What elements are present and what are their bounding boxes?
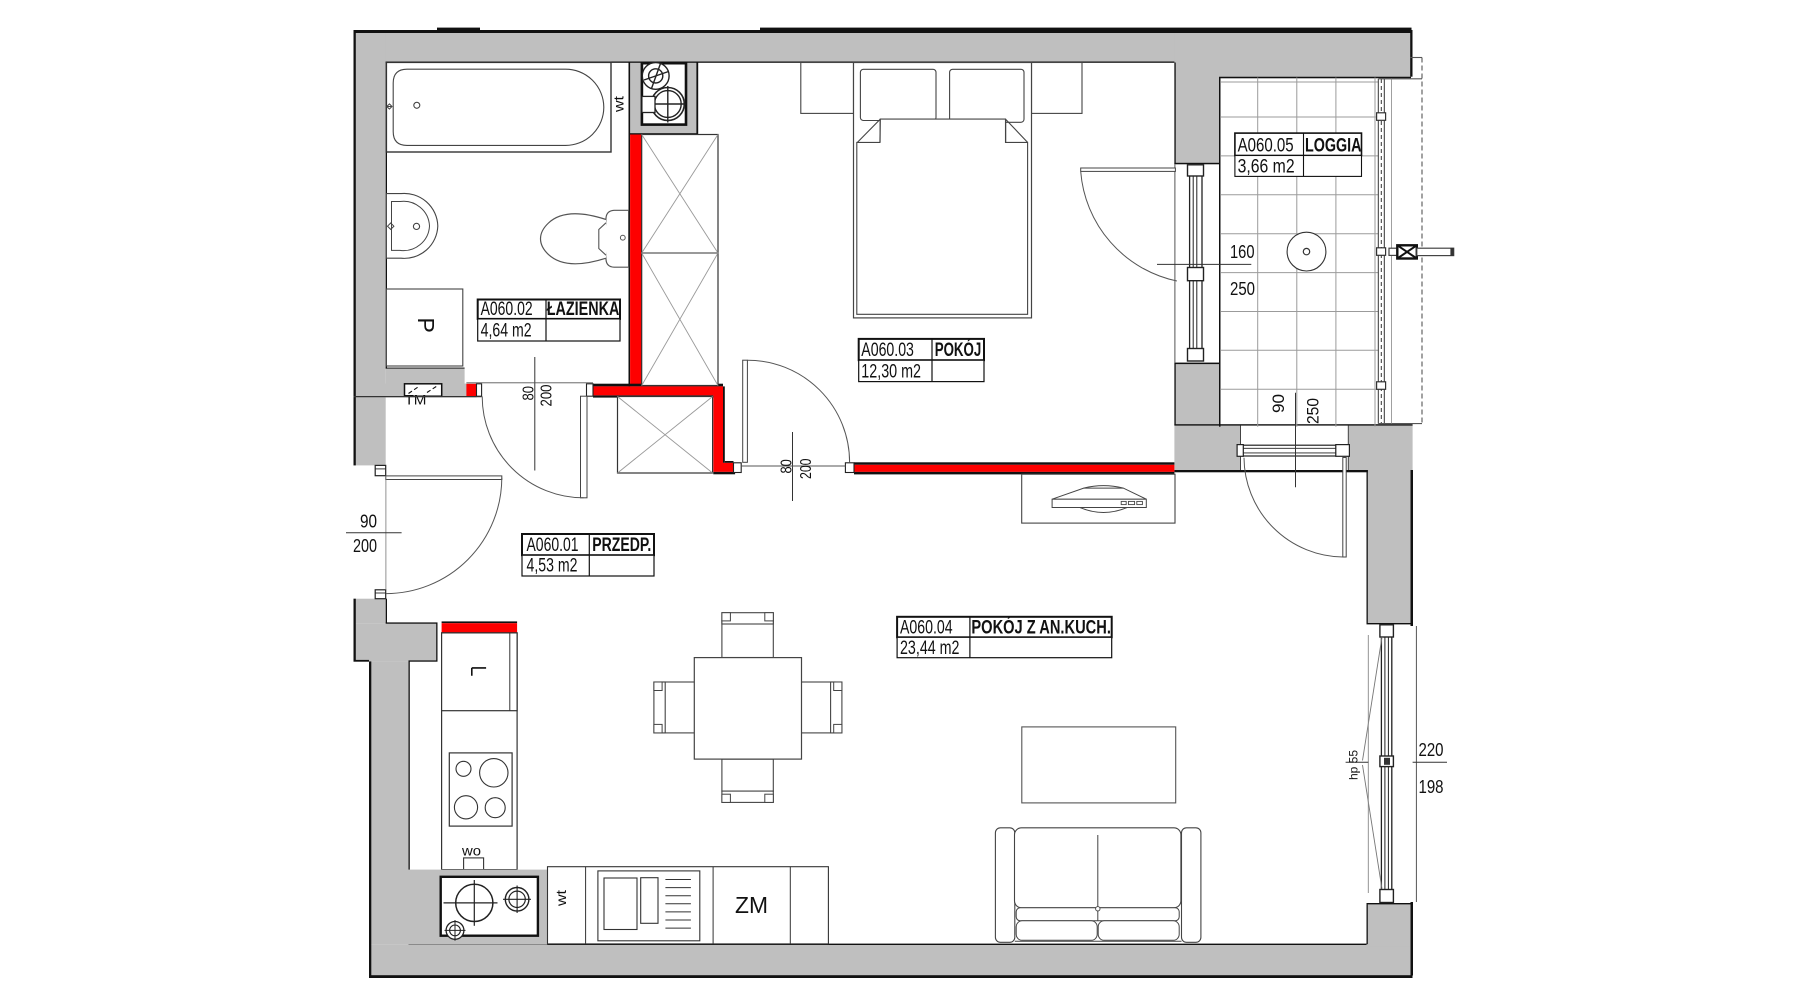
svg-text:4,64 m2: 4,64 m2 bbox=[481, 320, 532, 342]
svg-text:POKÓJ Z AN.KUCH.: POKÓJ Z AN.KUCH. bbox=[971, 615, 1111, 639]
svg-text:250: 250 bbox=[1230, 278, 1255, 299]
svg-text:LOGGIA: LOGGIA bbox=[1305, 134, 1362, 156]
svg-text:90: 90 bbox=[360, 510, 377, 531]
svg-text:A060.02: A060.02 bbox=[481, 298, 533, 320]
svg-text:90: 90 bbox=[1270, 394, 1288, 413]
svg-text:ŁAZIENKA: ŁAZIENKA bbox=[547, 298, 620, 320]
svg-text:A060.05: A060.05 bbox=[1238, 134, 1294, 156]
svg-text:wo: wo bbox=[461, 843, 481, 859]
svg-text:220: 220 bbox=[1419, 739, 1444, 760]
svg-text:250: 250 bbox=[1305, 398, 1323, 424]
svg-text:80: 80 bbox=[521, 386, 538, 401]
svg-text:4,53 m2: 4,53 m2 bbox=[527, 555, 578, 577]
svg-text:3,66 m2: 3,66 m2 bbox=[1238, 155, 1295, 177]
svg-text:POKÓJ: POKÓJ bbox=[935, 337, 982, 361]
svg-text:P: P bbox=[413, 318, 439, 333]
svg-text:198: 198 bbox=[1419, 776, 1444, 797]
svg-text:200: 200 bbox=[353, 535, 377, 556]
svg-text:80: 80 bbox=[779, 459, 796, 474]
svg-text:TM: TM bbox=[405, 393, 427, 408]
svg-text:200: 200 bbox=[539, 384, 556, 406]
svg-text:23,44 m2: 23,44 m2 bbox=[900, 637, 960, 659]
svg-text:PRZEDP.: PRZEDP. bbox=[592, 534, 651, 556]
svg-text:200: 200 bbox=[798, 458, 815, 479]
svg-text:hp 55: hp 55 bbox=[1347, 750, 1361, 780]
svg-text:ZM: ZM bbox=[735, 892, 768, 918]
svg-text:A060.01: A060.01 bbox=[527, 534, 579, 556]
svg-text:12,30 m2: 12,30 m2 bbox=[861, 360, 921, 382]
svg-text:A060.03: A060.03 bbox=[861, 339, 914, 361]
svg-text:wt: wt bbox=[612, 96, 627, 113]
svg-text:160: 160 bbox=[1230, 241, 1255, 262]
svg-text:wt: wt bbox=[553, 890, 569, 907]
svg-text:A060.04: A060.04 bbox=[900, 617, 953, 639]
